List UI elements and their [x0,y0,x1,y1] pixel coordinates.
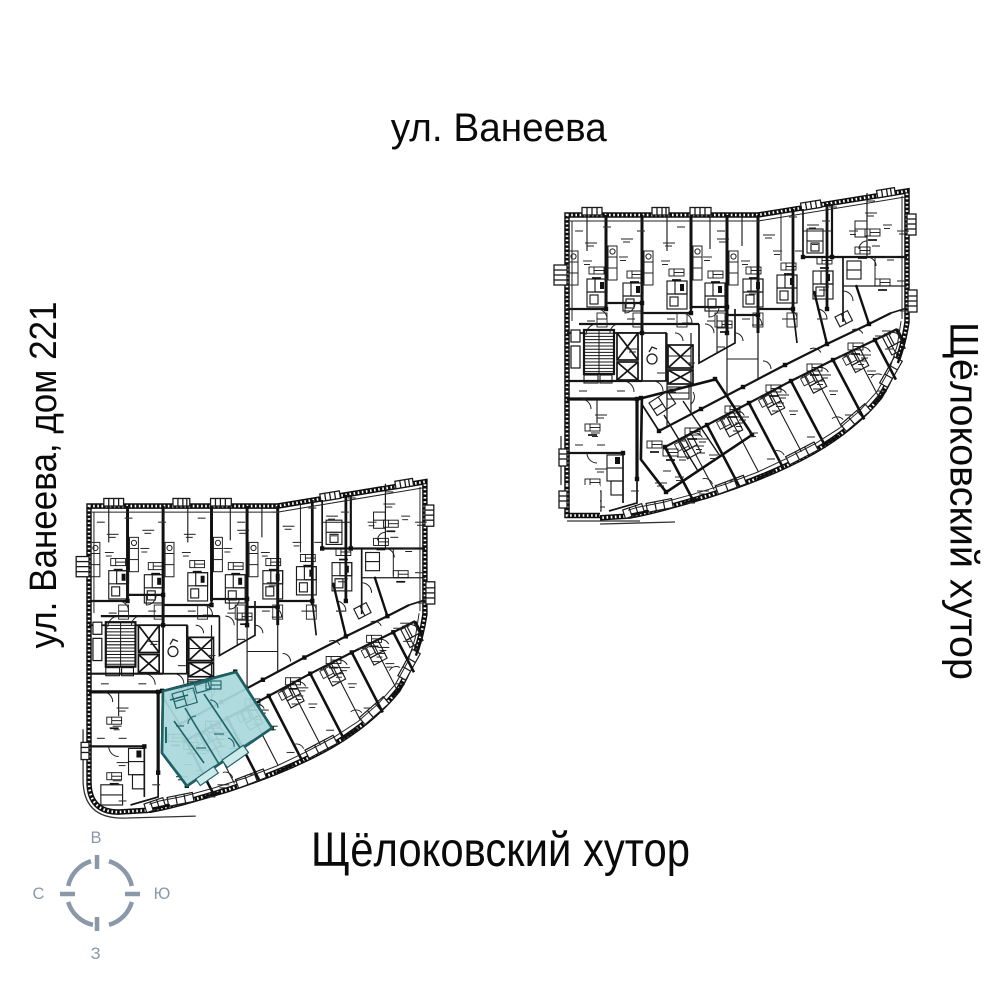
svg-text:ул. Ванеева: ул. Ванеева [391,106,608,150]
svg-text:ул. Ванеева, дом 221: ул. Ванеева, дом 221 [23,302,65,649]
svg-text:С: С [32,885,44,903]
svg-text:Щёлоковский хутор: Щёлоковский хутор [311,823,690,877]
svg-text:В: В [90,829,101,847]
svg-text:Щёлоковский хутор: Щёлоковский хутор [942,322,986,680]
svg-text:Ю: Ю [154,885,171,903]
svg-text:З: З [91,945,101,963]
